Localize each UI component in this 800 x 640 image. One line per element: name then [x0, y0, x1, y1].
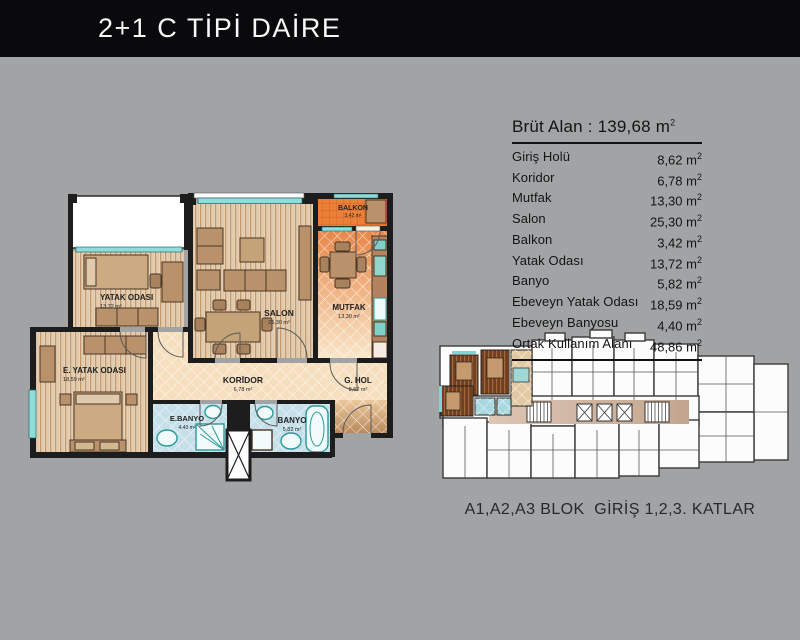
washbasin	[281, 433, 301, 449]
room-name: Balkon	[512, 231, 552, 252]
room-area: 8,62 m²	[349, 387, 368, 393]
washbasin	[157, 430, 177, 446]
kitchen-chair	[357, 257, 366, 272]
room-area-value: 18,59 m2	[650, 293, 702, 314]
balcony-unit	[366, 200, 386, 223]
stove	[374, 256, 386, 276]
area-row: Giriş Holü8,62 m2	[512, 148, 702, 169]
counter-appliance	[374, 322, 386, 336]
kitchen-chair	[335, 242, 350, 251]
wardrobe	[84, 336, 146, 354]
area-row: Koridor6,78 m2	[512, 169, 702, 190]
room-area: 5,82 m²	[283, 427, 302, 433]
room-area: 4,40 m²	[179, 425, 196, 431]
room-area-value: 4,40 m2	[657, 314, 702, 335]
bathtub	[306, 406, 328, 452]
dining-table	[206, 312, 260, 342]
sink	[374, 298, 386, 320]
dining-chair	[213, 344, 226, 354]
window	[76, 247, 182, 252]
room-area-value: 13,72 m2	[650, 252, 702, 273]
room-name: Mutfak	[512, 189, 552, 210]
desk-chair	[150, 274, 161, 288]
balcony-terrace-floor	[70, 196, 188, 248]
room-name: Salon	[512, 210, 546, 231]
room-name: Giriş Holü	[512, 148, 570, 169]
room-area-value: 6,78 m2	[657, 169, 702, 190]
window	[29, 390, 36, 438]
area-row: Ebeveyn Banyosu4,40 m2	[512, 314, 702, 335]
gross-area-unit: m2	[656, 117, 676, 136]
window	[322, 227, 352, 231]
area-row: Mutfak13,30 m2	[512, 189, 702, 210]
nightstand	[126, 394, 137, 405]
sofa	[224, 270, 286, 291]
dining-chair	[237, 300, 250, 310]
shaft	[227, 430, 250, 480]
room-area-value: 5,82 m2	[657, 272, 702, 293]
room-label: E. YATAK ODASI	[63, 366, 126, 375]
desk	[162, 262, 183, 302]
gross-area-value: 139,68	[598, 117, 651, 136]
kitchen-chair	[320, 257, 329, 272]
area-row: Yatak Odası13,72 m2	[512, 252, 702, 273]
kitchen-table	[330, 252, 356, 278]
dining-chair	[195, 318, 205, 331]
area-row: Banyo5,82 m2	[512, 272, 702, 293]
apartment-plan: YATAK ODASI 13,72 m² SALON 25,30 m² MUTF…	[29, 193, 393, 480]
gross-area-label: Brüt Alan :	[512, 117, 593, 136]
room-area-value: 25,30 m2	[650, 210, 702, 231]
room-area: 13,72 m²	[100, 304, 122, 310]
bed-pillow	[76, 394, 120, 404]
room-area-value: 3,42 m2	[657, 231, 702, 252]
area-table-rows: Giriş Holü8,62 m2Koridor6,78 m2Mutfak13,…	[512, 148, 702, 361]
room-name: Ebeveyn Banyosu	[512, 314, 618, 335]
room-area: 3,42 m²	[345, 213, 362, 219]
room-area: 6,78 m²	[234, 387, 253, 393]
room-label: G. HOL	[344, 376, 372, 385]
dining-chair	[213, 300, 226, 310]
area-row: Ebeveyn Yatak Odası18,59 m2	[512, 293, 702, 314]
armchair	[197, 270, 220, 290]
coffee-table	[240, 238, 264, 262]
room-area-value: 48,86 m2	[650, 335, 702, 356]
tv-unit	[299, 226, 311, 300]
washing-machine	[252, 430, 272, 450]
room-label: KORİDOR	[223, 375, 263, 385]
area-table: Brüt Alan : 139,68 m2 Giriş Holü8,62 m2K…	[512, 117, 702, 361]
area-row: Salon25,30 m2	[512, 210, 702, 231]
room-name: Koridor	[512, 169, 555, 190]
window	[198, 198, 302, 204]
kitchen-counter	[372, 236, 388, 358]
area-table-header: Brüt Alan : 139,68 m2	[512, 117, 702, 144]
room-name: Ortak Kullanım Alanı	[512, 335, 633, 356]
room-label: YATAK ODASI	[100, 293, 153, 302]
room-area: 18,59 m²	[63, 377, 85, 383]
entry-hall-tile-lattice	[333, 400, 387, 433]
room-area-value: 8,62 m2	[657, 148, 702, 169]
fridge	[373, 342, 387, 358]
room-area: 25,30 m²	[268, 320, 290, 326]
elevators	[577, 404, 632, 421]
room-label: SALON	[264, 308, 294, 318]
room-label: BALKON	[338, 205, 368, 212]
room-label: E.BANYO	[170, 414, 204, 423]
nightstand	[60, 394, 71, 405]
block-caption: A1,A2,A3 BLOK GİRİŞ 1,2,3. KATLAR	[450, 501, 770, 519]
room-name: Yatak Odası	[512, 252, 584, 273]
room-label: MUTFAK	[332, 303, 366, 312]
room-label: BANYO	[278, 416, 307, 425]
bed-pillow	[86, 258, 96, 286]
room-area-value: 13,30 m2	[650, 189, 702, 210]
balcony-door-sill	[356, 226, 380, 231]
dining-chair	[237, 344, 250, 354]
wardrobe	[96, 308, 158, 326]
area-row: Ortak Kullanım Alanı48,86 m2	[512, 335, 702, 356]
dresser	[40, 346, 55, 382]
room-area: 13,30 m²	[338, 314, 360, 320]
room-name: Ebeveyn Yatak Odası	[512, 293, 638, 314]
area-row: Balkon3,42 m2	[512, 231, 702, 252]
kitchen-chair	[335, 279, 350, 288]
room-name: Banyo	[512, 272, 549, 293]
window	[334, 194, 378, 198]
